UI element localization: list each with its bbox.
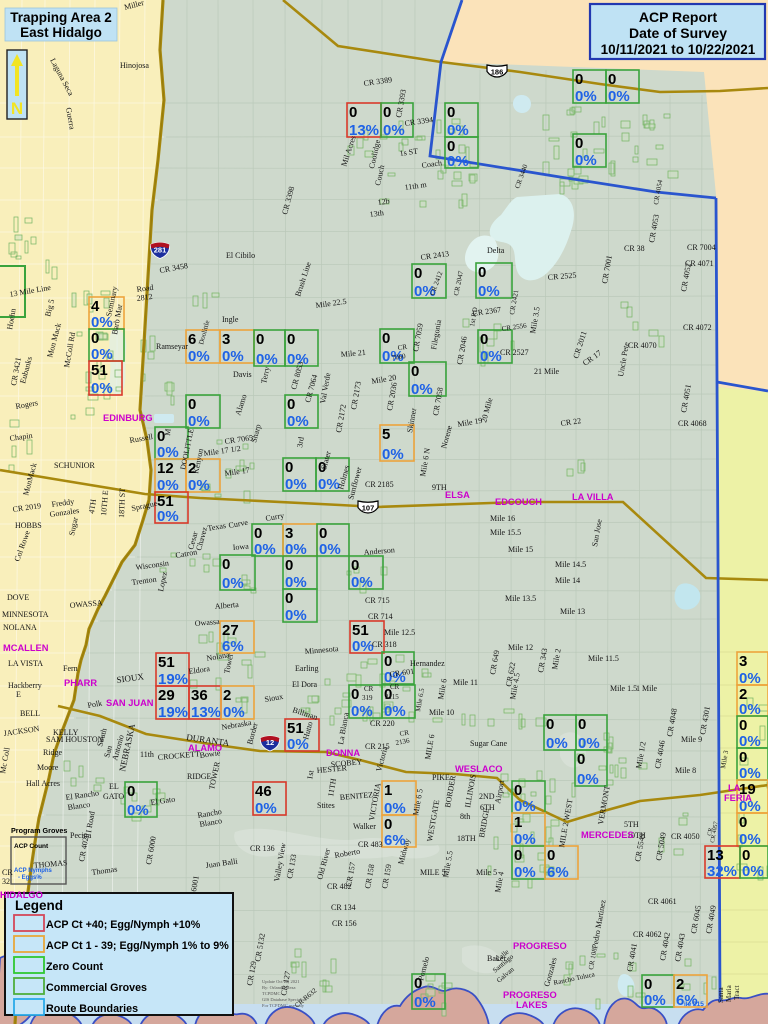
svg-text:0: 0: [384, 816, 392, 833]
svg-text:0: 0: [285, 459, 293, 476]
svg-text:0: 0: [383, 104, 391, 121]
svg-text:ACP Count: ACP Count: [14, 843, 49, 850]
svg-text:0: 0: [351, 557, 359, 574]
svg-text:0: 0: [287, 331, 295, 348]
svg-text:0: 0: [575, 71, 583, 88]
svg-text:3: 3: [285, 525, 293, 542]
svg-text:Moore: Moore: [37, 763, 59, 772]
svg-text:1: 1: [514, 814, 522, 831]
svg-text:51: 51: [287, 720, 304, 737]
svg-text:Earling: Earling: [295, 664, 319, 673]
svg-text:0: 0: [222, 556, 230, 573]
svg-text:51: 51: [91, 362, 108, 379]
svg-text:0%: 0%: [188, 413, 210, 430]
svg-text:0%: 0%: [319, 541, 341, 558]
svg-text:Mile 15: Mile 15: [508, 545, 533, 554]
svg-text:Mile 5: Mile 5: [476, 868, 497, 877]
svg-text:CR 4050: CR 4050: [671, 832, 700, 841]
svg-text:51: 51: [158, 654, 175, 671]
svg-text:MCALLEN: MCALLEN: [3, 643, 49, 653]
svg-text:10/11/2021 to 10/22/2021: 10/11/2021 to 10/22/2021: [601, 42, 756, 57]
svg-text:8th: 8th: [460, 812, 470, 821]
svg-text:0%: 0%: [414, 994, 436, 1011]
svg-text:186: 186: [491, 68, 504, 77]
svg-text:CR 4061: CR 4061: [648, 897, 677, 906]
svg-text:CR 4070: CR 4070: [628, 341, 657, 350]
svg-text:12: 12: [266, 738, 274, 747]
svg-text:Mile 8: Mile 8: [675, 766, 696, 775]
svg-text:ELSA: ELSA: [445, 490, 470, 500]
svg-text:0%: 0%: [351, 703, 373, 720]
svg-text:DOVE: DOVE: [7, 593, 29, 602]
svg-text:Mile 12: Mile 12: [508, 643, 533, 652]
svg-text:6: 6: [188, 331, 196, 348]
svg-text:LA VISTA: LA VISTA: [8, 659, 43, 668]
svg-text:Hernandez: Hernandez: [410, 659, 445, 668]
svg-text:0: 0: [188, 396, 196, 413]
svg-text:3: 3: [739, 653, 747, 670]
svg-text:0: 0: [739, 717, 747, 734]
svg-text:NOLANA: NOLANA: [3, 623, 37, 632]
svg-text:SCHUNIOR: SCHUNIOR: [54, 461, 96, 470]
svg-text:0: 0: [91, 330, 99, 347]
svg-text:Ingle: Ingle: [222, 315, 239, 324]
svg-text:0%: 0%: [546, 735, 568, 752]
svg-text:Mile 12.5: Mile 12.5: [384, 628, 415, 637]
svg-text:2115: 2115: [385, 693, 399, 701]
svg-text:0%: 0%: [742, 863, 764, 880]
svg-text:0%: 0%: [644, 992, 666, 1009]
svg-text:CR 715: CR 715: [365, 596, 390, 605]
svg-text:PROGRESO: PROGRESO: [503, 990, 557, 1000]
svg-text:Legend: Legend: [15, 898, 63, 913]
svg-text:Stites: Stites: [317, 801, 335, 810]
svg-text:Hackberry: Hackberry: [8, 681, 42, 690]
svg-text:0: 0: [575, 135, 583, 152]
svg-text:LAKES: LAKES: [516, 1000, 548, 1010]
svg-text:ACP Report: ACP Report: [639, 9, 718, 25]
svg-text:Santa: Santa: [717, 987, 725, 1003]
svg-text:0: 0: [254, 525, 262, 542]
svg-text:LA VILLA: LA VILLA: [572, 492, 614, 502]
svg-text:0: 0: [739, 749, 747, 766]
svg-text:GIS Database Specialist: GIS Database Specialist: [262, 997, 306, 1002]
svg-text:Trapping Area 2: Trapping Area 2: [10, 10, 112, 25]
svg-text:6TH: 6TH: [480, 803, 495, 812]
svg-text:0%: 0%: [608, 88, 630, 105]
svg-text:18TH ST: 18TH ST: [117, 488, 127, 518]
svg-text:CR 136: CR 136: [250, 844, 275, 853]
svg-text:0%: 0%: [285, 607, 307, 624]
svg-text:0%: 0%: [575, 88, 597, 105]
svg-text:- Eggs%: - Eggs%: [18, 875, 42, 881]
svg-text:CR 4068: CR 4068: [678, 419, 707, 428]
svg-text:Zero Count: Zero Count: [46, 961, 103, 973]
svg-text:0: 0: [608, 71, 616, 88]
svg-text:GATO: GATO: [103, 792, 124, 801]
svg-text:El Cibilo: El Cibilo: [226, 251, 255, 260]
svg-text:12: 12: [157, 460, 174, 477]
svg-text:0: 0: [739, 814, 747, 831]
svg-text:0: 0: [382, 330, 390, 347]
svg-text:Mile 13.5: Mile 13.5: [505, 594, 536, 603]
svg-text:0: 0: [578, 716, 586, 733]
svg-text:Mile 1.5: Mile 1.5: [610, 684, 637, 693]
svg-text:WESLACO: WESLACO: [455, 764, 503, 774]
svg-text:0%: 0%: [222, 575, 244, 592]
svg-text:Date of Survey: Date of Survey: [629, 25, 727, 41]
svg-text:0: 0: [256, 331, 264, 348]
svg-text:ile 215: ile 215: [684, 1001, 704, 1008]
svg-text:2: 2: [223, 687, 231, 704]
svg-text:3: 3: [222, 331, 230, 348]
svg-text:319: 319: [362, 694, 373, 702]
svg-text:0: 0: [514, 782, 522, 799]
svg-text:Mile 9: Mile 9: [681, 735, 702, 744]
svg-text:0%: 0%: [478, 283, 500, 300]
svg-text:EDCOUCH: EDCOUCH: [495, 497, 542, 507]
svg-text:0%: 0%: [254, 541, 276, 558]
svg-text:0: 0: [411, 363, 419, 380]
svg-text:0%: 0%: [256, 351, 278, 368]
svg-text:HIDALGO: HIDALGO: [0, 890, 43, 900]
svg-text:Tract: Tract: [733, 985, 741, 1000]
svg-text:0: 0: [384, 653, 392, 670]
svg-text:MINNESOTA: MINNESOTA: [2, 610, 49, 619]
svg-text:Walker: Walker: [353, 822, 376, 831]
svg-text:CR: CR: [397, 343, 408, 352]
svg-text:Program Groves: Program Groves: [11, 826, 67, 835]
svg-text:Davis: Davis: [233, 370, 252, 379]
svg-text:Sugar Cane: Sugar Cane: [470, 739, 508, 748]
svg-text:4: 4: [91, 298, 100, 315]
svg-text:2: 2: [676, 976, 684, 993]
svg-text:0: 0: [447, 104, 455, 121]
svg-text:CR 220: CR 220: [370, 719, 395, 728]
svg-text:Commercial Groves: Commercial Groves: [46, 982, 147, 994]
svg-text:SAN JUAN: SAN JUAN: [106, 698, 154, 708]
svg-text:CR: CR: [364, 685, 374, 693]
svg-text:51: 51: [352, 622, 369, 639]
svg-text:CR 156: CR 156: [332, 919, 357, 928]
svg-text:5: 5: [382, 426, 390, 443]
svg-text:0: 0: [644, 976, 652, 993]
svg-text:Iowa: Iowa: [232, 542, 249, 552]
svg-text:0%: 0%: [285, 476, 307, 493]
svg-text:Maria: Maria: [725, 984, 733, 1002]
svg-text:ALAMO: ALAMO: [188, 743, 222, 753]
svg-text:Mile 14: Mile 14: [555, 576, 580, 585]
svg-text:32: 32: [2, 877, 10, 886]
svg-text:29: 29: [158, 687, 175, 704]
svg-text:0: 0: [285, 590, 293, 607]
svg-text:Fern: Fern: [63, 664, 78, 673]
svg-text:ACP Ct 1 - 39; Egg/Nymph 1% to: ACP Ct 1 - 39; Egg/Nymph 1% to 9%: [46, 940, 229, 952]
svg-text:EL: EL: [109, 782, 119, 791]
svg-text:281: 281: [154, 246, 167, 255]
svg-text:0%: 0%: [255, 800, 277, 817]
svg-text:CR 482: CR 482: [327, 882, 352, 891]
svg-text:0%: 0%: [222, 348, 244, 365]
svg-text:PROGRESO: PROGRESO: [513, 941, 567, 951]
svg-text:RIDGE: RIDGE: [187, 772, 212, 781]
svg-text:0%: 0%: [577, 771, 599, 788]
svg-text:6%: 6%: [547, 864, 569, 881]
svg-text:BELL: BELL: [20, 709, 40, 718]
svg-text:18TH: 18TH: [457, 834, 476, 843]
svg-text:By: Orlando Meza: By: Orlando Meza: [262, 985, 296, 990]
svg-text:0: 0: [287, 396, 295, 413]
svg-text:0%: 0%: [447, 153, 469, 170]
svg-text:1: 1: [384, 782, 392, 799]
svg-text:Delta: Delta: [487, 246, 505, 255]
svg-text:CR 4062: CR 4062: [633, 930, 662, 939]
svg-text:13%: 13%: [191, 704, 221, 721]
svg-text:Mile 14.5: Mile 14.5: [555, 560, 586, 569]
svg-text:0: 0: [547, 847, 555, 864]
svg-text:0: 0: [319, 525, 327, 542]
svg-text:0: 0: [577, 751, 585, 768]
svg-text:0: 0: [414, 265, 422, 282]
svg-text:Mile 16: Mile 16: [490, 514, 515, 523]
svg-text:0%: 0%: [188, 348, 210, 365]
svg-text:2ND: 2ND: [479, 792, 495, 801]
svg-text:Mile 10: Mile 10: [429, 708, 454, 717]
svg-text:0%: 0%: [480, 348, 502, 365]
svg-text:0: 0: [514, 847, 522, 864]
svg-text:M: M: [163, 428, 173, 436]
svg-text:CR 4072: CR 4072: [683, 323, 712, 332]
svg-text:Hall Acres: Hall Acres: [26, 779, 60, 788]
svg-text:0: 0: [480, 331, 488, 348]
svg-text:0: 0: [546, 716, 554, 733]
svg-text:CR: CR: [2, 868, 13, 877]
svg-text:11th: 11th: [140, 750, 154, 759]
svg-text:107: 107: [362, 504, 375, 513]
svg-text:19%: 19%: [158, 704, 188, 721]
svg-text:E: E: [16, 690, 21, 699]
svg-text:0%: 0%: [91, 380, 113, 397]
svg-text:0%: 0%: [382, 446, 404, 463]
svg-text:N: N: [11, 99, 23, 118]
svg-text:EDINBURG: EDINBURG: [103, 413, 153, 423]
svg-text:0%: 0%: [223, 704, 245, 721]
svg-text:CR 318: CR 318: [372, 640, 397, 649]
svg-text:LA: LA: [728, 783, 741, 793]
svg-text:0%: 0%: [384, 703, 406, 720]
svg-text:32%: 32%: [707, 863, 737, 880]
svg-text:0: 0: [285, 557, 293, 574]
svg-text:Ramseyar: Ramseyar: [156, 342, 188, 351]
svg-text:0%: 0%: [575, 152, 597, 169]
svg-text:3rd: 3rd: [295, 436, 306, 448]
svg-text:El Dora: El Dora: [292, 680, 318, 689]
svg-text:TCPDMC: TCPDMC: [262, 991, 281, 996]
svg-text:46: 46: [255, 783, 272, 800]
svg-text:PHARR: PHARR: [64, 678, 97, 688]
svg-text:0%: 0%: [157, 508, 179, 525]
svg-text:HOBBS: HOBBS: [15, 521, 42, 530]
svg-text:0%: 0%: [514, 864, 536, 881]
svg-text:Hinojosa: Hinojosa: [120, 61, 149, 70]
svg-text:0%: 0%: [383, 122, 405, 139]
svg-text:CR 2185: CR 2185: [365, 480, 394, 489]
svg-text:0: 0: [478, 264, 486, 281]
svg-text:CR 714: CR 714: [368, 612, 393, 621]
svg-text:1 Mile: 1 Mile: [636, 684, 658, 693]
svg-text:FERIA: FERIA: [724, 793, 752, 803]
svg-text:0%: 0%: [411, 381, 433, 398]
svg-text:0: 0: [349, 104, 357, 121]
svg-text:0%: 0%: [352, 638, 374, 655]
svg-text:CR 38: CR 38: [624, 244, 645, 253]
svg-text:0%: 0%: [127, 802, 149, 819]
svg-text:13: 13: [707, 847, 724, 864]
svg-text:ACP Nymphs: ACP Nymphs: [14, 868, 53, 874]
svg-text:East Hidalgo: East Hidalgo: [20, 25, 102, 40]
svg-text:Mile 15.5: Mile 15.5: [490, 528, 521, 537]
svg-text:CR 2527: CR 2527: [500, 348, 529, 357]
svg-text:CR 7004: CR 7004: [687, 243, 716, 252]
svg-text:5TH: 5TH: [624, 820, 639, 829]
svg-text:Mile 11.5: Mile 11.5: [588, 654, 619, 663]
svg-text:27: 27: [222, 622, 239, 639]
svg-text:CR 134: CR 134: [331, 903, 356, 912]
svg-text:Mile 11: Mile 11: [453, 678, 478, 687]
svg-text:CR: CR: [390, 683, 400, 691]
svg-text:0%: 0%: [287, 413, 309, 430]
svg-text:0: 0: [742, 847, 750, 864]
svg-text:DONNA: DONNA: [326, 748, 360, 758]
svg-text:36: 36: [191, 687, 208, 704]
svg-text:0%: 0%: [188, 477, 210, 494]
svg-text:Ridge: Ridge: [43, 748, 63, 757]
svg-text:Mile 13: Mile 13: [560, 607, 585, 616]
svg-text:0: 0: [351, 686, 359, 703]
svg-text:Route Boundaries: Route Boundaries: [46, 1003, 138, 1015]
svg-text:CR 483: CR 483: [358, 840, 383, 849]
svg-text:MERCEDES: MERCEDES: [581, 830, 634, 840]
svg-text:For TCPDMC use only: For TCPDMC use only: [262, 1003, 305, 1008]
svg-text:21 Mile: 21 Mile: [534, 367, 560, 376]
svg-text:0%: 0%: [351, 574, 373, 591]
svg-text:ACP Ct +40; Egg/Nymph +10%: ACP Ct +40; Egg/Nymph +10%: [46, 919, 201, 931]
svg-text:0: 0: [127, 783, 135, 800]
svg-text:12b: 12b: [377, 196, 390, 207]
